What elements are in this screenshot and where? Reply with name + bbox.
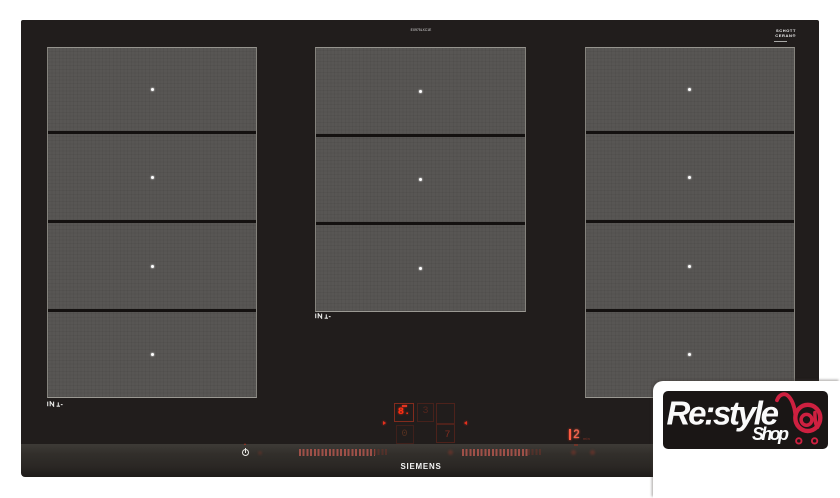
svg-text:Shop: Shop <box>752 424 789 444</box>
